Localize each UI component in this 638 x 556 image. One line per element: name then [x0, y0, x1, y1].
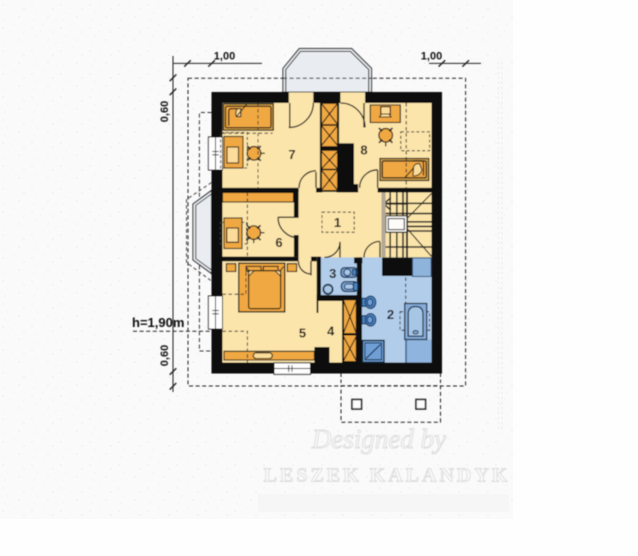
svg-text:7: 7 [288, 147, 295, 162]
svg-text:0,60: 0,60 [159, 345, 171, 366]
svg-text:1,00: 1,00 [214, 51, 235, 63]
svg-text:8: 8 [360, 143, 367, 158]
svg-text:LESZEK KALANDYK: LESZEK KALANDYK [264, 465, 511, 487]
svg-text:h=1,90m: h=1,90m [132, 315, 184, 330]
svg-text:6: 6 [275, 235, 282, 250]
svg-text:1,00: 1,00 [421, 51, 442, 63]
svg-text:2: 2 [387, 307, 394, 322]
svg-text:1: 1 [334, 215, 341, 230]
svg-text:0,60: 0,60 [159, 101, 171, 122]
svg-text:Designed by: Designed by [311, 424, 446, 454]
svg-text:3: 3 [329, 266, 336, 281]
svg-text:4: 4 [327, 324, 335, 339]
svg-text:5: 5 [299, 326, 306, 341]
